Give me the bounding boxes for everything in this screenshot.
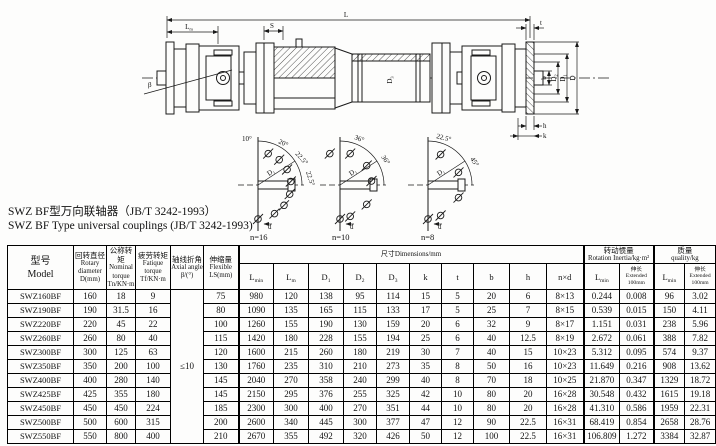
value-cell: 600 — [107, 416, 136, 430]
value-cell: 3384 — [654, 430, 685, 444]
value-cell: 908 — [654, 360, 685, 374]
value-cell: 340 — [274, 416, 309, 430]
value-cell: 25 — [474, 304, 510, 318]
value-cell: 980 — [239, 290, 274, 304]
value-cell: 150 — [654, 304, 685, 318]
value-cell: 10×23 — [547, 346, 584, 360]
detail-angle: 36° — [379, 154, 391, 167]
value-cell: 0.539 — [584, 304, 620, 318]
value-cell: 0.586 — [620, 402, 654, 416]
value-cell: 165 — [309, 304, 344, 318]
value-cell: 45 — [107, 318, 136, 332]
value-cell: 400 — [309, 402, 344, 416]
value-cell: 200 — [204, 416, 239, 430]
spec-table: 型号Model 回转直径 Rotary diameter D(mm) 公称转矩 … — [7, 245, 716, 444]
value-cell: 15 — [510, 346, 547, 360]
detail-D1-label: D1 — [436, 167, 447, 178]
value-cell: 574 — [654, 346, 685, 360]
dim-label-b: b — [540, 76, 548, 80]
value-cell: 8×15 — [547, 304, 584, 318]
value-cell: 20 — [410, 318, 442, 332]
value-cell: 220 — [74, 318, 107, 332]
detail-angle: 22.5° — [304, 170, 316, 187]
detail-caption: n=10 — [332, 232, 350, 242]
value-cell: 0.061 — [620, 332, 654, 346]
value-cell: 21.870 — [584, 374, 620, 388]
value-cell: 70 — [474, 374, 510, 388]
value-cell: 160 — [74, 290, 107, 304]
value-cell: 0.031 — [620, 318, 654, 332]
value-cell: 100 — [474, 430, 510, 444]
value-cell: 22.5 — [510, 430, 547, 444]
dim-col-header: Lm — [274, 264, 309, 290]
value-cell: 238 — [654, 318, 685, 332]
value-cell: 800 — [107, 430, 136, 444]
value-cell: 25 — [410, 332, 442, 346]
value-cell: 9 — [510, 318, 547, 332]
value-cell: 100 — [204, 318, 239, 332]
dim-label-beta: β — [148, 81, 152, 89]
value-cell: 388 — [654, 332, 685, 346]
value-cell: 40 — [474, 346, 510, 360]
value-cell: 6 — [510, 290, 547, 304]
value-cell: 95 — [344, 290, 377, 304]
value-cell: 190 — [309, 318, 344, 332]
value-cell: 115 — [344, 304, 377, 318]
value-cell: 1090 — [239, 304, 274, 318]
value-cell: 1760 — [239, 360, 274, 374]
value-cell: 2600 — [239, 416, 274, 430]
table-row: SWZ160BF160189≤1075980120138951141552068… — [8, 290, 716, 304]
value-cell: 8×13 — [547, 290, 584, 304]
detail-D1-label: D1 — [348, 167, 359, 178]
value-cell: 120 — [204, 346, 239, 360]
value-cell: 40 — [474, 332, 510, 346]
value-cell: 68.419 — [584, 416, 620, 430]
title-zh: SWZ BF型万向联轴器（JB/T 3242-1993） — [8, 205, 253, 219]
value-cell: 6 — [442, 332, 474, 346]
value-cell: 18 — [510, 374, 547, 388]
value-cell: 300 — [344, 416, 377, 430]
value-cell: 80 — [474, 388, 510, 402]
dim-col-header: D2 — [344, 264, 377, 290]
value-cell: 2300 — [239, 402, 274, 416]
value-cell: 47 — [410, 416, 442, 430]
value-cell: 41.310 — [584, 402, 620, 416]
dim-label-d: d — [438, 223, 442, 231]
value-cell: 17 — [410, 304, 442, 318]
value-cell: 80 — [107, 332, 136, 346]
value-cell: 96 — [654, 290, 685, 304]
value-cell: 400 — [136, 430, 171, 444]
value-cell: 16 — [510, 360, 547, 374]
value-cell: 50 — [474, 360, 510, 374]
value-cell: 358 — [309, 374, 344, 388]
dim-label-d: d — [350, 223, 354, 231]
value-cell: 155 — [274, 318, 309, 332]
value-cell: 215 — [274, 346, 309, 360]
value-cell: 270 — [344, 402, 377, 416]
dim-label-t: t — [540, 19, 542, 27]
value-cell: 12 — [442, 430, 474, 444]
value-cell: 3.02 — [685, 290, 716, 304]
value-cell: 240 — [344, 374, 377, 388]
value-cell: 1.151 — [584, 318, 620, 332]
value-cell: 0.854 — [620, 416, 654, 430]
shaft-tube: D3 — [352, 54, 430, 102]
spec-table-body: SWZ160BF160189≤1075980120138951141552068… — [8, 290, 716, 444]
value-cell: 90 — [474, 416, 510, 430]
value-cell: 31.5 — [107, 304, 136, 318]
value-cell: 351 — [377, 402, 410, 416]
value-cell: 0.432 — [620, 388, 654, 402]
value-cell: 0.216 — [620, 360, 654, 374]
table-row: SWZ400BF40028014014520402703582402994087… — [8, 374, 716, 388]
value-cell: 22.5 — [510, 416, 547, 430]
title-en: SWZ BF Type universal couplings (JB/T 32… — [8, 219, 253, 233]
dim-label-L: L — [344, 11, 348, 19]
value-cell: 219 — [377, 346, 410, 360]
extended-col-header: 伸长Extended100mm — [685, 264, 716, 290]
value-cell: 80 — [204, 304, 239, 318]
value-cell: 228 — [309, 332, 344, 346]
value-cell: 185 — [204, 402, 239, 416]
value-cell: 114 — [377, 290, 410, 304]
dim-S: S — [264, 22, 283, 40]
value-cell: 16×31 — [547, 430, 584, 444]
detail-angle: 45° — [468, 156, 480, 169]
value-cell: 19.18 — [685, 388, 716, 402]
value-cell: 299 — [377, 374, 410, 388]
value-cell: 18.72 — [685, 374, 716, 388]
value-cell: 280 — [107, 374, 136, 388]
value-cell: 115 — [204, 332, 239, 346]
value-cell: 425 — [74, 388, 107, 402]
table-row: SWZ190BF19031.51680109013516511513317525… — [8, 304, 716, 318]
value-cell: 2040 — [239, 374, 274, 388]
value-cell: 155 — [344, 332, 377, 346]
value-cell: 16 — [136, 304, 171, 318]
value-cell: 2670 — [239, 430, 274, 444]
value-cell: 320 — [344, 430, 377, 444]
header-group-mass: 质量 quality/kg — [654, 246, 716, 264]
dim-label-h: h — [543, 122, 547, 130]
dim-col-header: D3 — [377, 264, 410, 290]
value-cell: 8×19 — [547, 332, 584, 346]
value-cell: 7 — [442, 346, 474, 360]
value-cell: 50 — [410, 430, 442, 444]
right-end-assembly — [432, 42, 543, 114]
value-cell: 376 — [309, 388, 344, 402]
value-cell: 500 — [74, 416, 107, 430]
table-row: SWZ500BF50060031520026003404453003774712… — [8, 416, 716, 430]
value-cell: 180 — [136, 388, 171, 402]
value-cell: 210 — [344, 360, 377, 374]
dim-label-Lm: Lm — [185, 23, 193, 32]
value-cell: 1420 — [239, 332, 274, 346]
value-cell: 12 — [442, 416, 474, 430]
model-cell: SWZ260BF — [8, 332, 74, 346]
document-title-block: SWZ BF型万向联轴器（JB/T 3242-1993） SWZ BF Type… — [8, 205, 253, 234]
value-cell: 159 — [377, 318, 410, 332]
value-cell: 2150 — [239, 388, 274, 402]
bolt-circle-detail-n8: D1 22.5° 45° d n=8 — [408, 132, 481, 242]
value-cell: 426 — [377, 430, 410, 444]
bolt-circle-detail-n10: D1 36° 36° d n=10 — [320, 133, 392, 242]
value-cell: 22.31 — [685, 402, 716, 416]
detail-angle: 36° — [353, 133, 365, 144]
dim-col-header: b — [474, 264, 510, 290]
header-flexible: 伸缩量 Flexible LS(mm) — [204, 246, 239, 290]
grease-fitting — [296, 39, 302, 47]
dim-col-header: Lmin — [239, 264, 274, 290]
value-cell: 180 — [344, 346, 377, 360]
header-nominal-torque: 公称转矩 Nominal torque Tn/KN·m — [107, 246, 136, 290]
value-cell: 13.62 — [685, 360, 716, 374]
value-cell: 125 — [107, 346, 136, 360]
value-cell: 35 — [410, 360, 442, 374]
value-cell: 6 — [442, 318, 474, 332]
value-cell: 1600 — [239, 346, 274, 360]
dim-label-D1: D1 — [559, 74, 568, 81]
detail-caption: n=8 — [421, 232, 434, 242]
value-cell: 1.272 — [620, 430, 654, 444]
value-cell: 11.649 — [584, 360, 620, 374]
dim-col-header: Lmin — [654, 264, 685, 290]
value-cell: 5.96 — [685, 318, 716, 332]
dim-label-D2: D2 — [550, 74, 559, 81]
value-cell: 18 — [107, 290, 136, 304]
value-cell: 0.008 — [620, 290, 654, 304]
dim-col-header: k — [410, 264, 442, 290]
header-axial-angle: 轴线折角 Axial angle β/(°) — [171, 246, 204, 290]
model-cell: SWZ500BF — [8, 416, 74, 430]
value-cell: 145 — [204, 388, 239, 402]
value-cell: 450 — [74, 402, 107, 416]
dim-Lm: Lm — [167, 23, 218, 44]
header-fatigue-torque: 疲劳转矩 Fatique torque Tf/KN·m — [136, 246, 171, 290]
value-cell: 42 — [410, 388, 442, 402]
value-cell: 28.76 — [685, 416, 716, 430]
value-cell: 10 — [442, 388, 474, 402]
dim-label-d: d — [268, 223, 272, 231]
value-cell: 20 — [510, 402, 547, 416]
value-cell: 4.11 — [685, 304, 716, 318]
value-cell: 295 — [274, 388, 309, 402]
table-row: SWZ350BF35020010013017602353102102733585… — [8, 360, 716, 374]
value-cell: 7.82 — [685, 332, 716, 346]
value-cell: 300 — [274, 402, 309, 416]
extended-col-header: 伸长Extended100mm — [620, 264, 654, 290]
value-cell: 32 — [474, 318, 510, 332]
value-cell: 235 — [274, 360, 309, 374]
value-cell: 355 — [107, 388, 136, 402]
value-cell: 492 — [309, 430, 344, 444]
value-cell: 9.37 — [685, 346, 716, 360]
value-cell: 130 — [204, 360, 239, 374]
value-cell: 1260 — [239, 318, 274, 332]
value-cell: 1615 — [654, 388, 685, 402]
dim-label-S: S — [270, 22, 274, 30]
value-cell: 75 — [204, 290, 239, 304]
value-cell: 194 — [377, 332, 410, 346]
model-cell: SWZ425BF — [8, 388, 74, 402]
value-cell: 2658 — [654, 416, 685, 430]
table-row: SWZ425BF42535518014521502953762553254210… — [8, 388, 716, 402]
model-cell: SWZ160BF — [8, 290, 74, 304]
dim-col-header: Lmin — [584, 264, 620, 290]
header-group-dimensions: 尺寸Dimensions/mm — [239, 246, 584, 264]
value-cell: 44 — [410, 402, 442, 416]
slip-sleeve-section — [256, 39, 352, 113]
value-cell: 10 — [442, 402, 474, 416]
table-row: SWZ260BF26080401151420180228155194256401… — [8, 332, 716, 346]
value-cell: 400 — [74, 374, 107, 388]
value-cell: 10×23 — [547, 360, 584, 374]
value-cell: 30 — [410, 346, 442, 360]
model-cell: SWZ550BF — [8, 430, 74, 444]
value-cell: 12.5 — [510, 332, 547, 346]
value-cell: 550 — [74, 430, 107, 444]
value-cell: 0.015 — [620, 304, 654, 318]
value-cell: 0.347 — [620, 374, 654, 388]
left-end-assembly — [157, 42, 256, 114]
value-cell: 8×17 — [547, 318, 584, 332]
value-cell: 10×25 — [547, 374, 584, 388]
dim-label-D: D — [569, 75, 577, 80]
value-cell: 20 — [510, 388, 547, 402]
value-cell: 63 — [136, 346, 171, 360]
dim-col-header: t — [442, 264, 474, 290]
dim-col-header: h — [510, 264, 547, 290]
value-cell: 1329 — [654, 374, 685, 388]
header-rotary-diameter: 回转直径 Rotary diameter D(mm) — [74, 246, 107, 290]
value-cell: 32.87 — [685, 430, 716, 444]
value-cell: 310 — [309, 360, 344, 374]
value-cell: 0.244 — [584, 290, 620, 304]
dim-col-header: D1 — [309, 264, 344, 290]
value-cell: 325 — [377, 388, 410, 402]
value-cell: 260 — [309, 346, 344, 360]
model-cell: SWZ350BF — [8, 360, 74, 374]
model-cell: SWZ450BF — [8, 402, 74, 416]
value-cell: 224 — [136, 402, 171, 416]
dim-col-header: n×d — [547, 264, 584, 290]
detail-D1-label: D1 — [266, 167, 277, 178]
axial-angle-value: ≤10 — [171, 290, 204, 444]
value-cell: 0.095 — [620, 346, 654, 360]
value-cell: 315 — [136, 416, 171, 430]
value-cell: 120 — [274, 290, 309, 304]
model-cell: SWZ300BF — [8, 346, 74, 360]
value-cell: 350 — [74, 360, 107, 374]
value-cell: 1959 — [654, 402, 685, 416]
value-cell: 5 — [442, 304, 474, 318]
value-cell: 145 — [204, 374, 239, 388]
value-cell: 20 — [474, 290, 510, 304]
value-cell: 133 — [377, 304, 410, 318]
value-cell: 80 — [474, 402, 510, 416]
detail-angle: 20° — [277, 138, 289, 149]
table-row: SWZ220BF22045221001260155190130159206329… — [8, 318, 716, 332]
value-cell: 273 — [377, 360, 410, 374]
value-cell: 8 — [442, 374, 474, 388]
value-cell: 5.312 — [584, 346, 620, 360]
value-cell: 130 — [344, 318, 377, 332]
detail-angle: 10° — [242, 135, 252, 143]
header-group-inertia: 转动惯量 Rotation Inertia/kg·m² — [584, 246, 654, 264]
value-cell: 16×31 — [547, 416, 584, 430]
value-cell: 22 — [136, 318, 171, 332]
value-cell: 5 — [442, 290, 474, 304]
value-cell: 355 — [274, 430, 309, 444]
value-cell: 16×28 — [547, 402, 584, 416]
model-cell: SWZ400BF — [8, 374, 74, 388]
value-cell: 210 — [204, 430, 239, 444]
value-cell: 255 — [344, 388, 377, 402]
value-cell: 260 — [74, 332, 107, 346]
value-cell: 8 — [442, 360, 474, 374]
table-row: SWZ550BF55080040021026703554923204265012… — [8, 430, 716, 444]
value-cell: 140 — [136, 374, 171, 388]
table-row: SWZ450BF45045022418523003004002703514410… — [8, 402, 716, 416]
value-cell: 190 — [74, 304, 107, 318]
value-cell: 100 — [136, 360, 171, 374]
value-cell: 40 — [410, 374, 442, 388]
model-cell: SWZ220BF — [8, 318, 74, 332]
header-model: 型号Model — [8, 246, 74, 290]
value-cell: 9 — [136, 290, 171, 304]
value-cell: 40 — [136, 332, 171, 346]
value-cell: 300 — [74, 346, 107, 360]
dim-label-k: k — [543, 132, 547, 140]
detail-angle: 22.5° — [294, 150, 310, 167]
model-cell: SWZ190BF — [8, 304, 74, 318]
value-cell: 180 — [274, 332, 309, 346]
value-cell: 445 — [309, 416, 344, 430]
value-cell: 2.672 — [584, 332, 620, 346]
table-row: SWZ300BF30012563120160021526018021930740… — [8, 346, 716, 360]
value-cell: 450 — [107, 402, 136, 416]
value-cell: 15 — [410, 290, 442, 304]
value-cell: 7 — [510, 304, 547, 318]
value-cell: 200 — [107, 360, 136, 374]
value-cell: 106.809 — [584, 430, 620, 444]
value-cell: 30.548 — [584, 388, 620, 402]
value-cell: 16×28 — [547, 388, 584, 402]
dim-L: L — [167, 11, 530, 38]
value-cell: 135 — [274, 304, 309, 318]
value-cell: 377 — [377, 416, 410, 430]
value-cell: 138 — [309, 290, 344, 304]
value-cell: 270 — [274, 374, 309, 388]
